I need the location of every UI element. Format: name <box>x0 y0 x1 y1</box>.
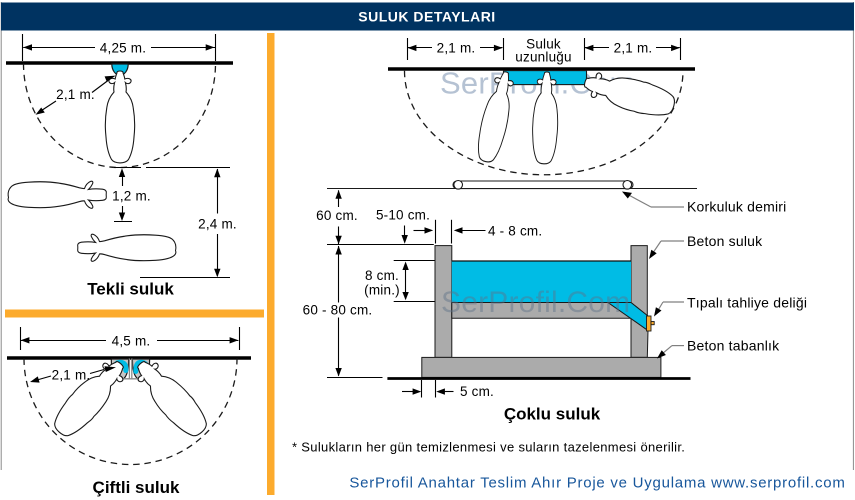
svg-text:Tekli suluk: Tekli suluk <box>87 280 174 299</box>
svg-text:Tıpalı tahliye deliği: Tıpalı tahliye deliği <box>687 295 807 311</box>
svg-text:5 cm.: 5 cm. <box>460 384 494 399</box>
svg-text:Çiftli suluk: Çiftli suluk <box>93 478 180 497</box>
svg-text:4 - 8 cm.: 4 - 8 cm. <box>488 224 542 239</box>
svg-text:60 cm.: 60 cm. <box>316 208 358 223</box>
svg-text:SerProfil.Com: SerProfil.Com <box>441 286 630 319</box>
svg-text:2,1 m.: 2,1 m. <box>56 87 95 102</box>
svg-text:2,1 m.: 2,1 m. <box>614 41 653 56</box>
svg-text:2,4 m.: 2,4 m. <box>198 217 237 232</box>
svg-text:Korkuluk demiri: Korkuluk demiri <box>687 199 786 215</box>
svg-text:Beton suluk: Beton suluk <box>687 233 763 249</box>
svg-text:4,5 m.: 4,5 m. <box>112 333 151 348</box>
svg-text:5-10 cm.: 5-10 cm. <box>376 208 430 223</box>
svg-text:* Sulukların her gün temizlenm: * Sulukların her gün temizlenmesi ve sul… <box>292 440 685 455</box>
svg-text:Çoklu suluk: Çoklu suluk <box>504 405 601 424</box>
svg-text:(min.): (min.) <box>364 283 400 298</box>
svg-text:SerProfil Anahtar Teslim Ahır: SerProfil Anahtar Teslim Ahır Proje ve U… <box>349 475 845 492</box>
svg-text:2,1 m.: 2,1 m. <box>52 368 91 383</box>
svg-text:SULUK DETAYLARI: SULUK DETAYLARI <box>358 9 495 25</box>
svg-text:60 - 80 cm.: 60 - 80 cm. <box>303 303 373 318</box>
svg-text:8 cm.: 8 cm. <box>365 268 399 283</box>
svg-text:4,25 m.: 4,25 m. <box>100 41 146 56</box>
svg-text:1,2 m.: 1,2 m. <box>112 189 151 204</box>
svg-text:2,1 m.: 2,1 m. <box>437 41 476 56</box>
svg-text:Beton tabanlık: Beton tabanlık <box>687 338 780 354</box>
svg-text:uzunluğu: uzunluğu <box>515 50 571 65</box>
